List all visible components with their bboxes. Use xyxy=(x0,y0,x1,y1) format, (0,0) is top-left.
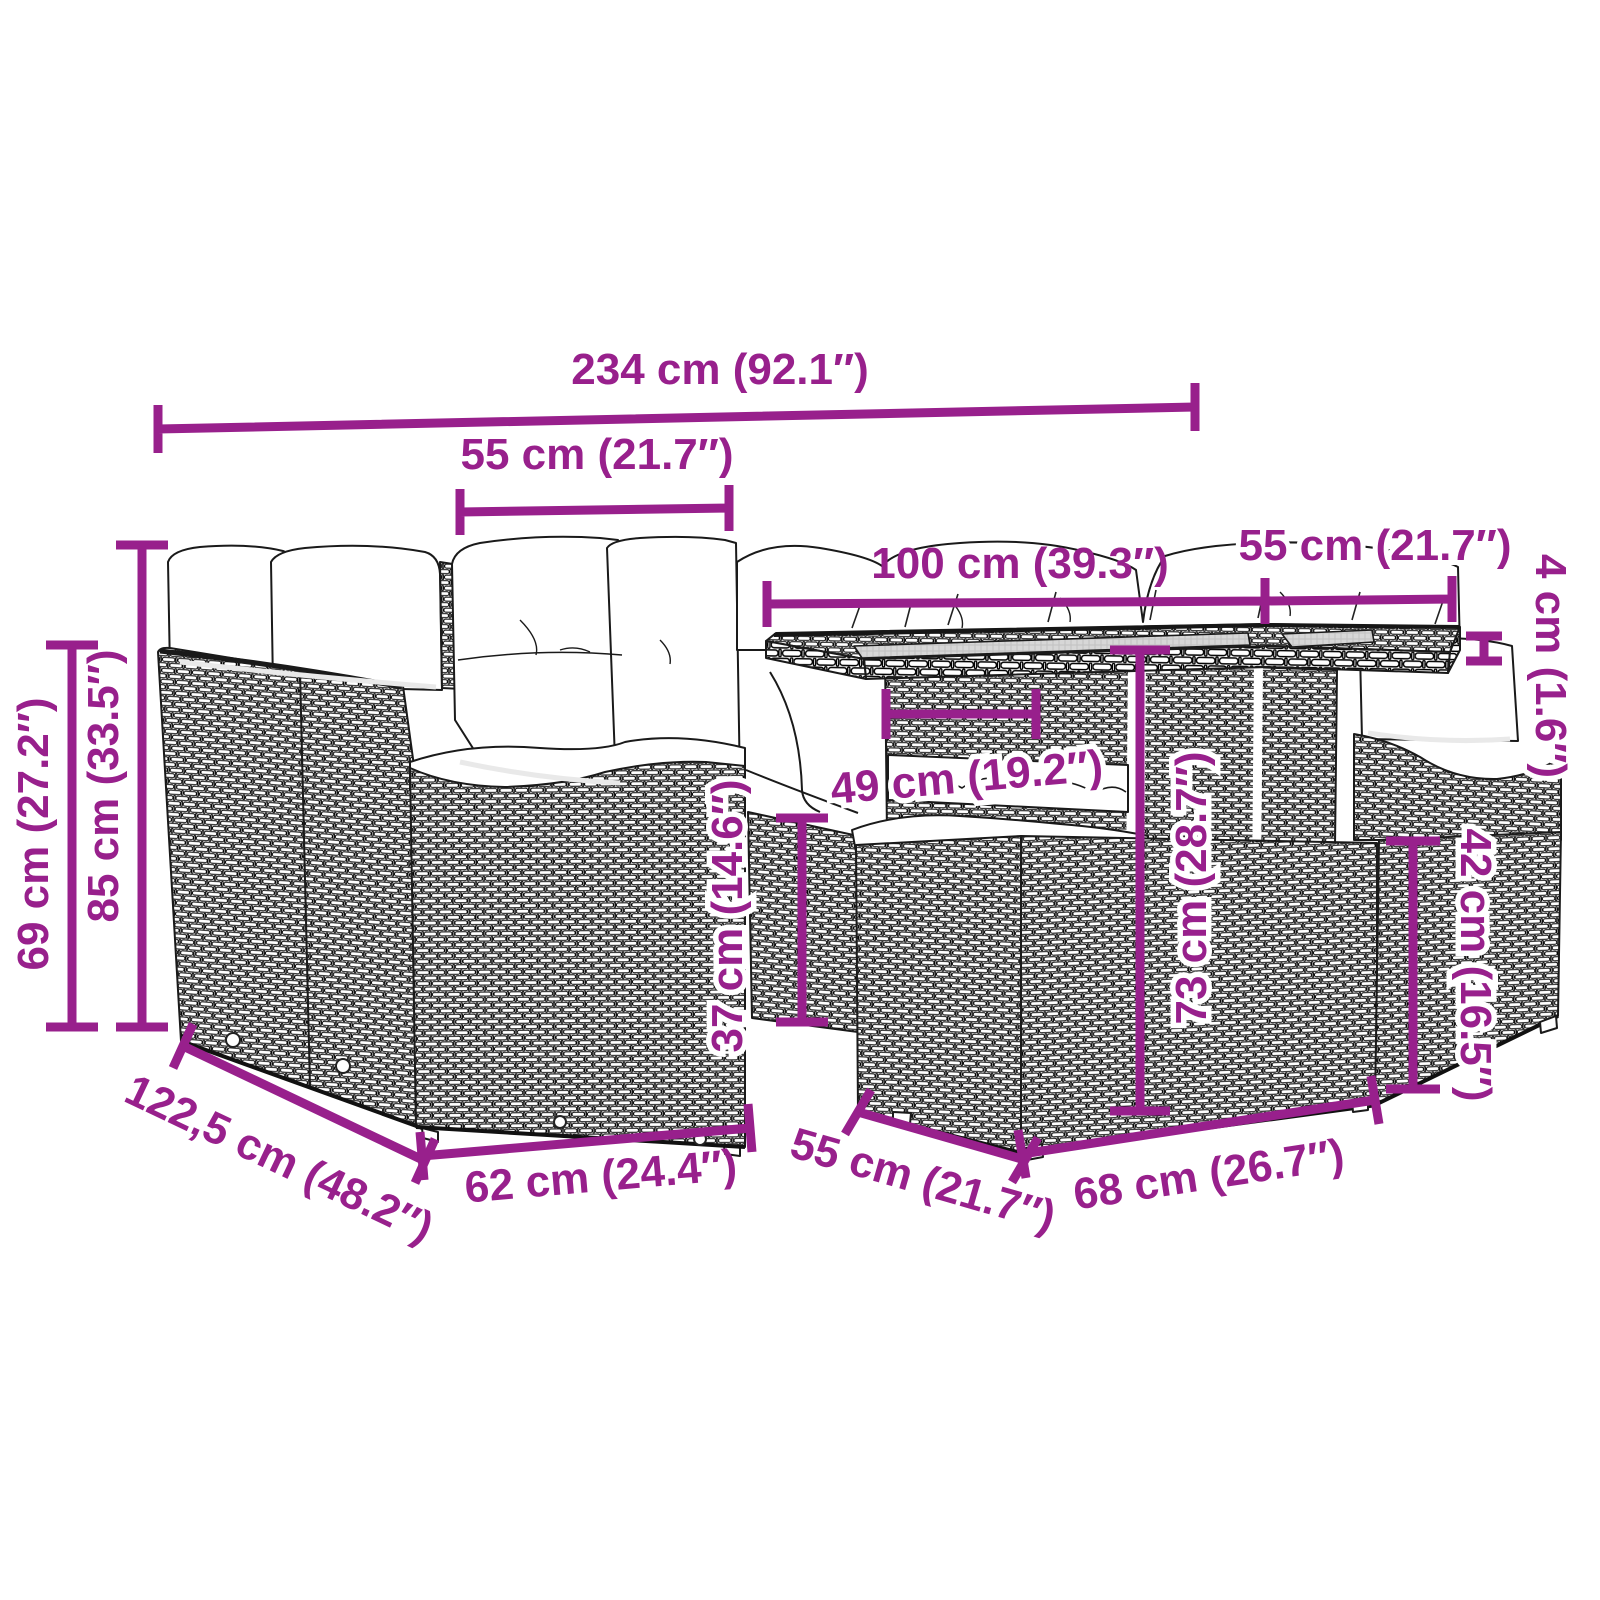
svg-text:55 cm (21.7″): 55 cm (21.7″) xyxy=(1238,521,1511,570)
svg-text:42 cm (16.5″): 42 cm (16.5″) xyxy=(1451,828,1500,1101)
svg-text:69 cm (27.2″): 69 cm (27.2″) xyxy=(9,697,58,970)
svg-text:4 cm (1.6″): 4 cm (1.6″) xyxy=(1526,554,1575,778)
svg-text:73 cm (28.7″): 73 cm (28.7″) xyxy=(1167,751,1216,1024)
svg-text:37 cm (14.6″): 37 cm (14.6″) xyxy=(703,779,752,1052)
svg-text:234 cm (92.1″): 234 cm (92.1″) xyxy=(571,345,868,394)
svg-text:55 cm (21.7″): 55 cm (21.7″) xyxy=(460,430,733,479)
svg-text:85 cm (33.5″): 85 cm (33.5″) xyxy=(79,649,128,922)
svg-text:100 cm (39.3″): 100 cm (39.3″) xyxy=(871,539,1168,588)
